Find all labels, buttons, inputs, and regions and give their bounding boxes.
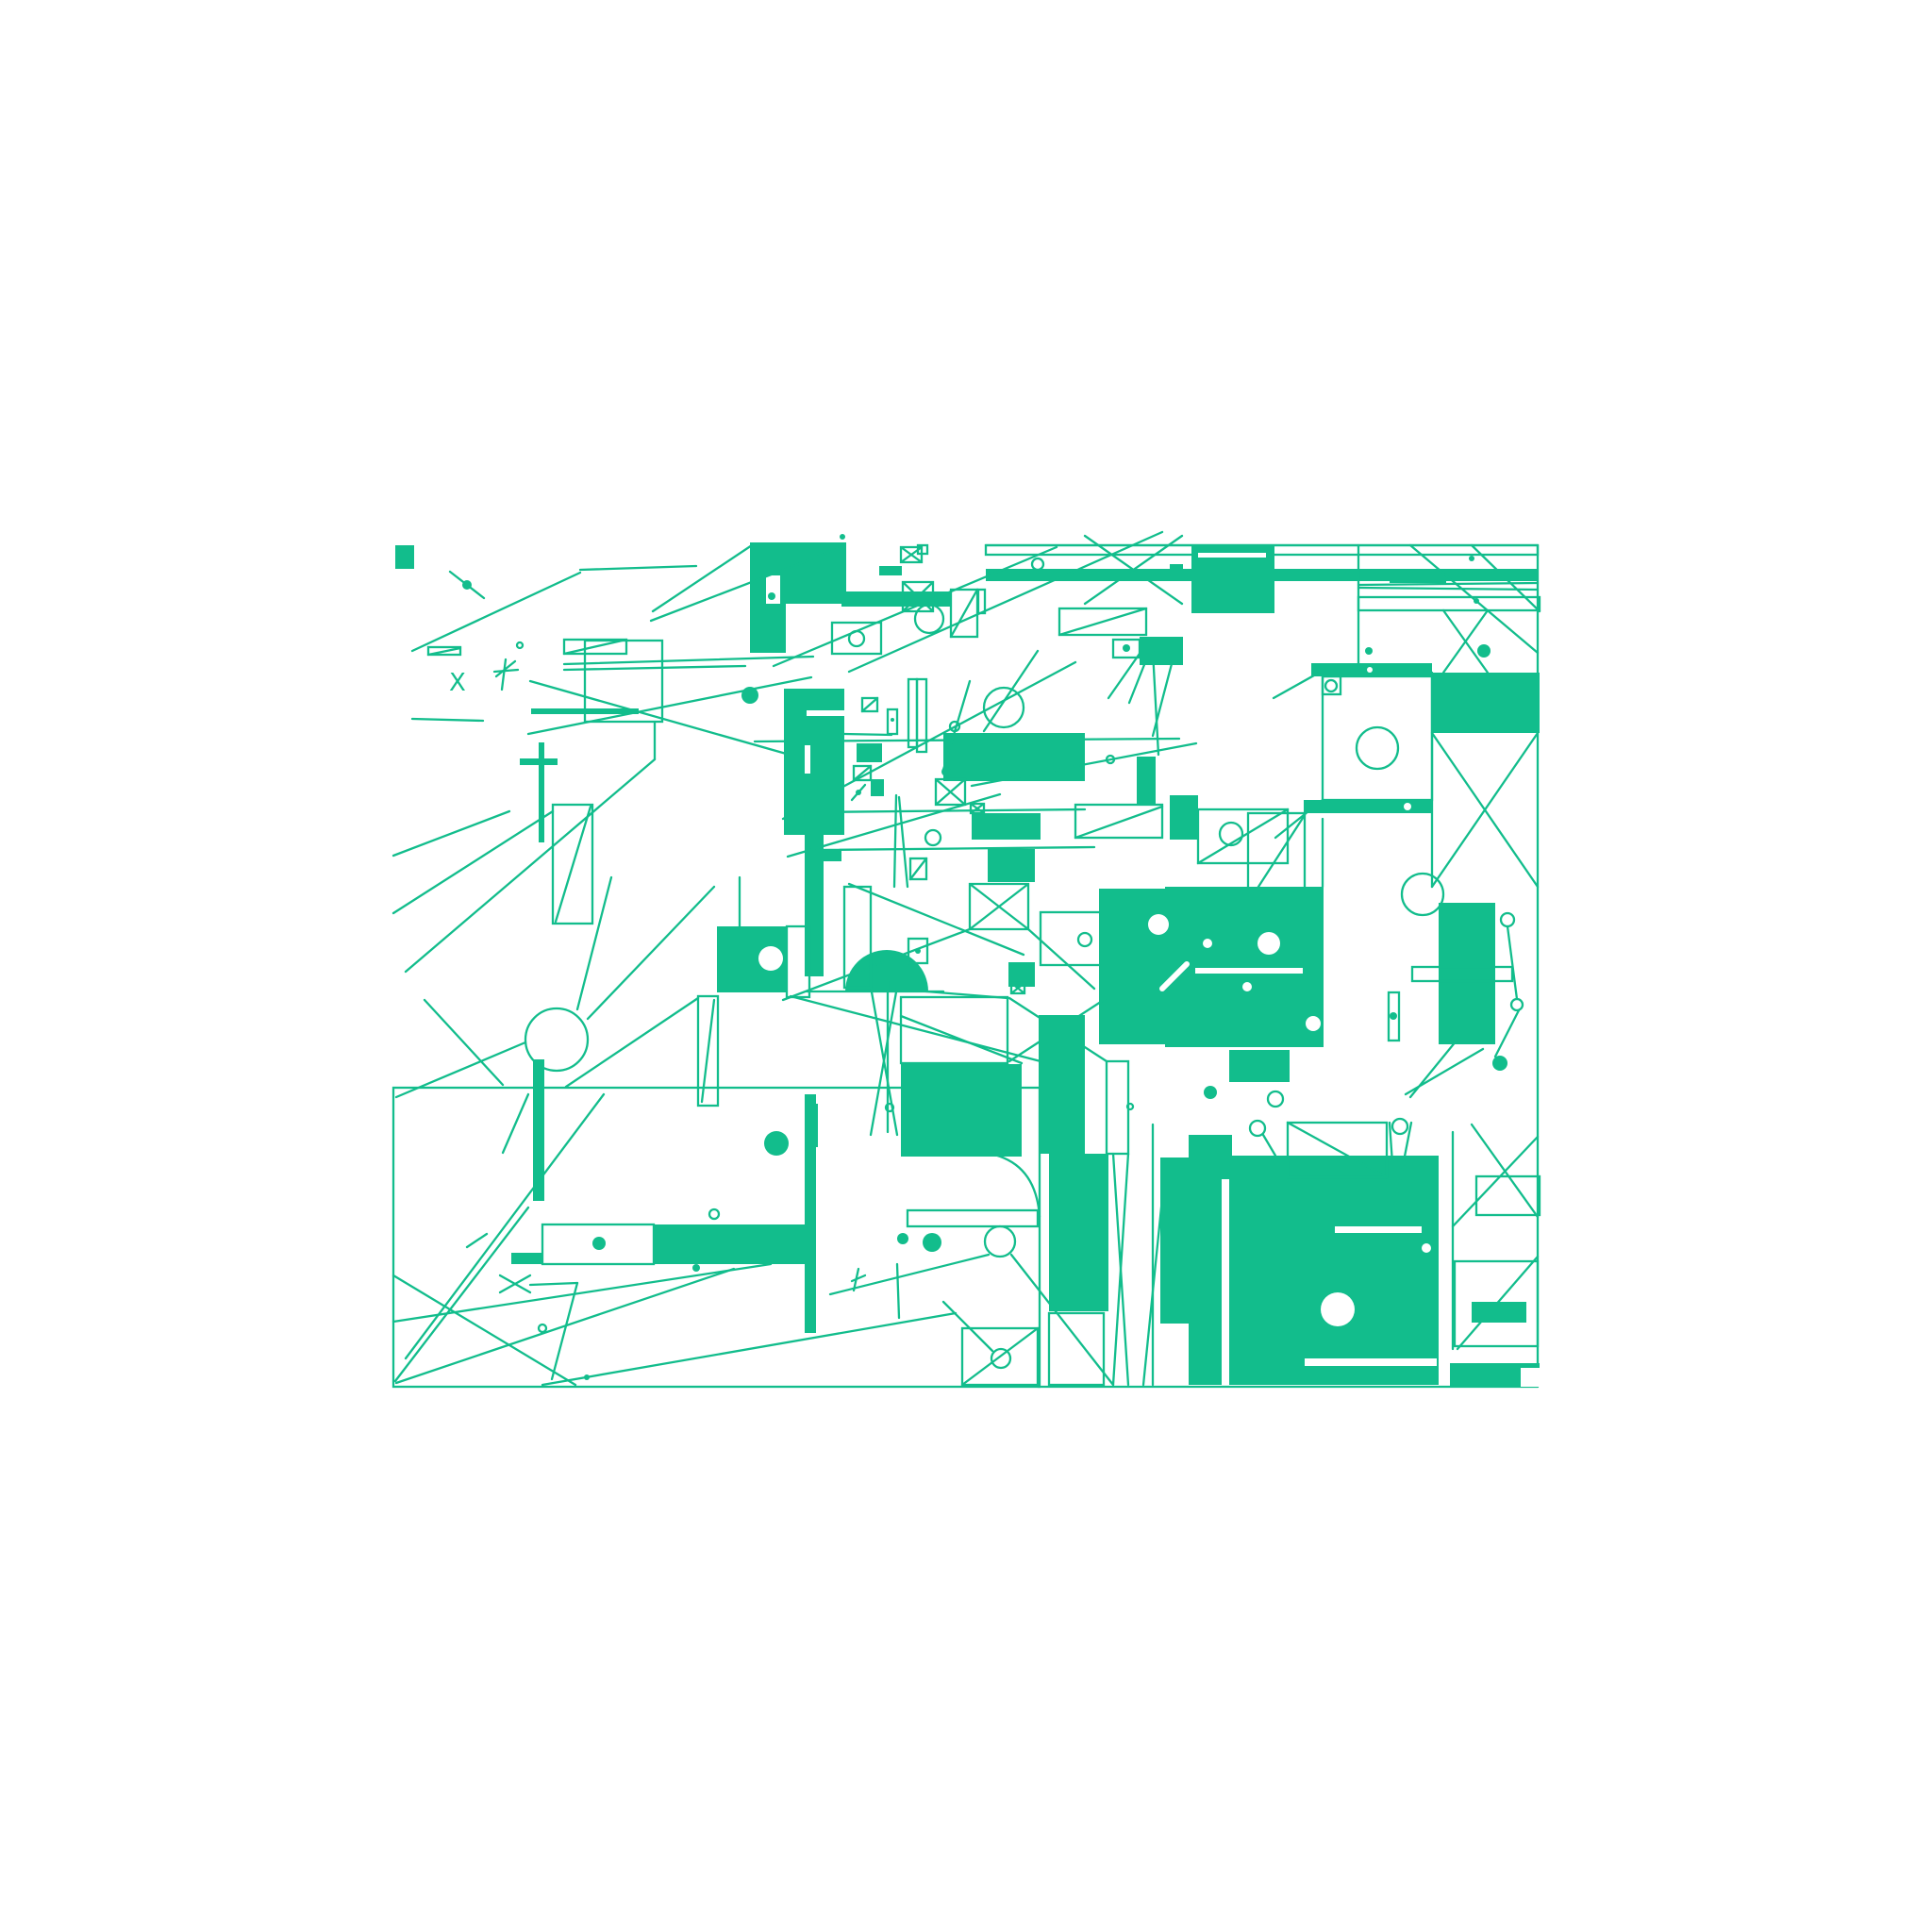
- line-shape: [943, 1302, 992, 1351]
- line-shape: [406, 1094, 604, 1358]
- line-shape: [1129, 653, 1149, 703]
- line-shape: [852, 1275, 865, 1281]
- line-shape: [566, 998, 698, 1087]
- line-shape: [844, 734, 891, 735]
- line-shape: [1198, 809, 1288, 863]
- circle-shape: [592, 1237, 606, 1250]
- line-shape: [412, 719, 483, 721]
- line-shape: [412, 573, 580, 651]
- line-shape: [897, 1264, 899, 1318]
- circle-shape: [1250, 1121, 1265, 1136]
- line-shape: [395, 1207, 528, 1381]
- circle-shape: [1477, 644, 1491, 658]
- rect-shape: [1107, 1061, 1128, 1154]
- line-shape: [791, 996, 1041, 1061]
- rect-shape: [1476, 1176, 1540, 1215]
- line-shape: [1358, 588, 1538, 590]
- rect-shape: [1160, 1158, 1189, 1324]
- circle-shape: [768, 592, 775, 600]
- line-shape: [894, 795, 896, 887]
- rect-shape: [901, 1064, 1022, 1157]
- line-shape: [962, 1328, 1038, 1385]
- rect-shape: [972, 813, 1041, 840]
- circle-shape: [1268, 1091, 1283, 1107]
- line-shape: [1495, 1010, 1519, 1057]
- line-shape: [1453, 1137, 1538, 1226]
- line-shape: [530, 681, 809, 760]
- rect-shape: [1390, 571, 1446, 583]
- circle-shape: [1123, 644, 1130, 652]
- line-shape: [393, 811, 553, 913]
- circle-shape: [539, 1324, 546, 1332]
- line-shape: [577, 877, 611, 1009]
- line-shape: [1472, 1124, 1538, 1217]
- rect-shape: [805, 745, 810, 774]
- rect-shape: [1432, 673, 1540, 733]
- circle-shape: [1203, 939, 1212, 948]
- rect-shape: [1304, 800, 1432, 813]
- line-shape: [503, 1094, 528, 1153]
- rect-shape: [871, 779, 884, 796]
- line-shape: [425, 1000, 503, 1085]
- rect-shape: [1137, 757, 1156, 805]
- circle-shape: [925, 830, 941, 845]
- rect-shape: [1039, 1015, 1085, 1154]
- rect-shape: [1305, 1358, 1437, 1366]
- circle-shape: [1321, 1292, 1355, 1326]
- circle-shape: [1469, 556, 1474, 561]
- rect-shape: [395, 545, 414, 569]
- circle-shape: [517, 642, 523, 648]
- circle-shape: [1390, 1012, 1397, 1020]
- path-shape: [985, 1153, 1040, 1217]
- circle-shape: [1242, 982, 1252, 991]
- rect-shape: [539, 742, 544, 842]
- rect-shape: [750, 604, 786, 653]
- line-shape: [862, 698, 877, 711]
- line-shape: [1075, 807, 1162, 838]
- line-shape: [1028, 929, 1094, 989]
- line-shape: [951, 590, 977, 637]
- crossed-box-shape: [971, 804, 984, 813]
- line-shape: [396, 1042, 525, 1097]
- circle-shape: [462, 580, 472, 590]
- crossed-box-shape: [936, 779, 965, 805]
- rect-shape: [1358, 597, 1540, 610]
- circle-shape: [915, 948, 921, 954]
- line-shape: [406, 759, 655, 972]
- circle-shape: [1422, 1243, 1431, 1253]
- rect-shape: [978, 590, 985, 613]
- rect-shape: [908, 679, 917, 747]
- rect-shape: [1049, 1154, 1108, 1311]
- circle-shape: [856, 790, 861, 795]
- rect-shape: [1472, 1302, 1526, 1323]
- circle-shape: [991, 1349, 1010, 1368]
- circle-shape: [1402, 874, 1443, 915]
- circle-shape: [840, 534, 845, 540]
- circle-shape: [923, 1233, 941, 1252]
- circle-shape: [1222, 1284, 1229, 1291]
- rect-shape: [805, 835, 824, 976]
- line-shape: [556, 807, 591, 922]
- circle-shape: [692, 1264, 700, 1272]
- circle-shape: [709, 1209, 719, 1219]
- line-shape: [849, 884, 1024, 955]
- rect-shape: [1195, 968, 1303, 974]
- circle-shape: [1492, 1056, 1507, 1071]
- art-canvas: X: [0, 0, 1932, 1932]
- rect-shape: [1229, 1050, 1290, 1082]
- circle-shape: [985, 1226, 1015, 1257]
- line-shape: [821, 847, 1094, 850]
- line-shape: [467, 1234, 487, 1247]
- rect-shape: [1439, 903, 1495, 1044]
- circle-shape: [1357, 727, 1398, 769]
- rect-shape: [807, 710, 844, 716]
- circle-shape: [1365, 647, 1373, 655]
- rect-shape: [654, 1224, 805, 1264]
- rect-shape: [1521, 1368, 1540, 1387]
- circle-shape: [1257, 932, 1280, 955]
- line-shape: [1263, 1135, 1275, 1156]
- rect-shape: [988, 849, 1035, 882]
- rect-shape: [1198, 553, 1266, 558]
- line-shape: [910, 858, 926, 879]
- line-shape: [564, 657, 813, 664]
- rect-shape: [520, 758, 558, 765]
- circle-shape: [1148, 914, 1169, 935]
- rect-shape: [1189, 1135, 1232, 1156]
- line-shape: [393, 1275, 575, 1385]
- line-shape: [1274, 672, 1321, 698]
- crossed-box-shape: [970, 884, 1028, 929]
- line-shape: [1507, 926, 1517, 999]
- circle-shape: [941, 767, 951, 776]
- circle-shape: [1511, 999, 1523, 1010]
- circle-shape: [1204, 1086, 1217, 1099]
- circle-shape: [741, 687, 758, 704]
- line-shape: [528, 677, 811, 734]
- circle-shape: [1367, 667, 1373, 673]
- line-shape: [564, 640, 626, 654]
- circle-shape: [1220, 823, 1242, 845]
- line-shape: [1059, 608, 1146, 635]
- circle-shape: [1306, 1016, 1321, 1031]
- rect-shape: [908, 1210, 1038, 1226]
- circle-shape: [897, 1233, 908, 1244]
- line-shape: [580, 566, 696, 570]
- x-glyph: X: [449, 669, 466, 697]
- circle-shape: [584, 1374, 590, 1380]
- rect-shape: [1049, 1313, 1104, 1385]
- circle-shape: [1127, 1104, 1133, 1109]
- rect-shape: [1335, 1226, 1422, 1233]
- rect-shape: [1170, 564, 1183, 580]
- rect-shape: [805, 1094, 816, 1333]
- line-shape: [564, 666, 745, 670]
- rect-shape: [1170, 795, 1198, 840]
- line-shape: [1410, 545, 1538, 653]
- generative-artwork: X: [0, 0, 1932, 1932]
- rect-shape: [1222, 1179, 1229, 1385]
- circle-shape: [1078, 933, 1091, 946]
- circle-shape: [891, 718, 894, 722]
- line-shape: [494, 670, 518, 672]
- circle-shape: [758, 946, 783, 971]
- circle-shape: [1222, 1229, 1229, 1237]
- circle-shape: [1501, 913, 1514, 926]
- rect-shape: [1099, 889, 1191, 1044]
- rect-shape: [857, 743, 882, 762]
- circle-shape: [1392, 1119, 1407, 1134]
- circle-shape: [1325, 680, 1337, 691]
- circle-shape: [1404, 803, 1411, 810]
- line-shape: [530, 1283, 577, 1285]
- line-shape: [502, 659, 506, 690]
- rect-shape: [511, 1253, 543, 1264]
- line-shape: [901, 1016, 1022, 1063]
- circle-shape: [764, 1131, 789, 1156]
- line-shape: [393, 1264, 771, 1322]
- line-shape: [702, 1000, 714, 1102]
- line-shape: [542, 1313, 956, 1385]
- rect-shape: [879, 566, 902, 575]
